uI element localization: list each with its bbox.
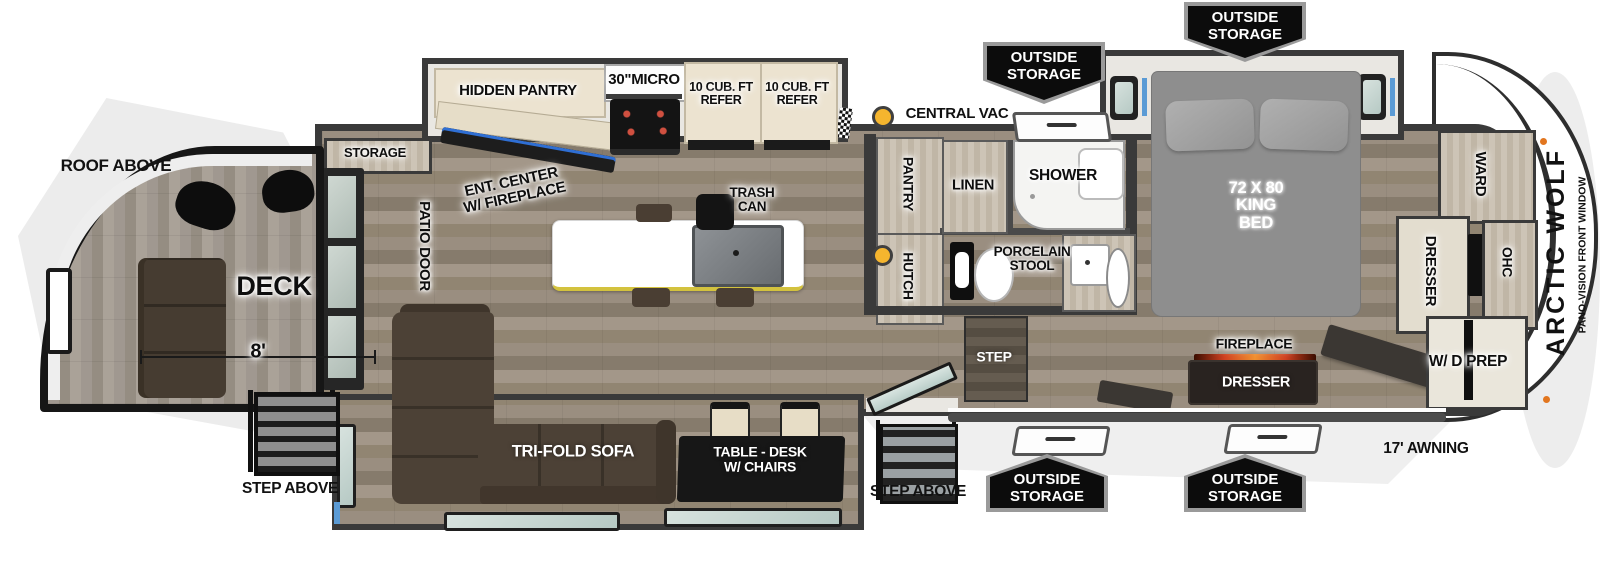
badge-text: OUTSIDE STORAGE: [1184, 9, 1306, 44]
sofa-slide-window-2: [664, 508, 842, 527]
baggage-door-bottom-1-handle: [1045, 437, 1076, 441]
trash-line2: CAN: [730, 200, 775, 214]
bed-pillow-left: [1165, 98, 1255, 151]
hutch-label: HUTCH: [901, 252, 916, 300]
island-stool-bottom-2: [716, 288, 754, 307]
pantry-label: PANTRY: [901, 157, 916, 211]
bedroom-dresser-label: DRESSER: [1222, 375, 1290, 390]
badge-line1: OUTSIDE: [983, 49, 1105, 66]
bed-line2: KING: [1229, 197, 1284, 214]
sofa-arm-end: [656, 420, 676, 504]
bed-line1: 72 X 80: [1229, 180, 1284, 197]
linen-label: LINEN: [952, 178, 994, 193]
sofa-label: TRI-FOLD SOFA: [512, 443, 635, 460]
shower-drain: [1030, 194, 1035, 199]
badge-line2: STORAGE: [1184, 26, 1306, 43]
baggage-door-top-handle: [1046, 123, 1077, 127]
fireplace-label: FIREPLACE: [1216, 337, 1293, 352]
central-vac-dot: [872, 106, 894, 128]
patio-door-label: PATIO DOOR: [416, 201, 432, 291]
badge-text: OUTSIDE STORAGE: [986, 471, 1108, 506]
bedroom-slide-window-right-pane: [1363, 80, 1381, 114]
refer1-line2: REFER: [689, 94, 753, 107]
baggage-door-top: [1012, 112, 1112, 142]
awning-bar: [948, 413, 1446, 422]
sofa-slide-window-1: [444, 512, 620, 531]
king-bed-label: 72 X 80 KING BED: [1229, 180, 1284, 232]
stove: [610, 99, 680, 155]
deck-label: DECK: [236, 272, 311, 300]
patio-door-pane-2: [328, 246, 356, 308]
storage-label: STORAGE: [344, 146, 406, 160]
kitchen-bath-wall: [864, 134, 876, 314]
vanity-faucet: [1085, 260, 1090, 265]
bedroom-slide-accent-right: [1390, 78, 1395, 116]
toilet-paper: [955, 252, 969, 288]
badge-line1: OUTSIDE: [1184, 9, 1306, 26]
badge-line2: STORAGE: [986, 488, 1108, 505]
roof-above-label: ROOF ABOVE: [61, 157, 172, 175]
deck-window: [46, 268, 72, 354]
table-desk-line1: TABLE - DESK: [713, 444, 806, 459]
refrigerator-1-base: [688, 140, 754, 150]
cap-marker-light-top: [1540, 138, 1547, 145]
microwave-label: 30"MICRO: [608, 72, 679, 88]
badge-line2: STORAGE: [1184, 488, 1306, 505]
badge-line1: OUTSIDE: [1184, 471, 1306, 488]
deck-stairs: [254, 392, 340, 476]
baggage-door-bottom-1: [1011, 426, 1110, 456]
sofa-back-cushion: [480, 486, 672, 504]
central-vac-label: CENTRAL VAC: [906, 106, 1009, 122]
deck-dim-tick-left: [140, 350, 142, 364]
outside-storage-badge-top-1: OUTSIDE STORAGE: [983, 42, 1105, 104]
table-desk-line2: W/ CHAIRS: [713, 459, 806, 474]
deck-sofa: [138, 258, 226, 398]
overhead-cabinet-label: OHC: [1500, 247, 1515, 277]
baggage-door-bottom-2-handle: [1257, 435, 1288, 439]
awning-rail-light: [948, 408, 1446, 412]
refer2-line2: REFER: [765, 94, 829, 107]
badge-text: OUTSIDE STORAGE: [983, 49, 1105, 84]
refrigerator-2-label: 10 CUB. FT REFER: [765, 81, 829, 107]
refrigerator-2-base: [764, 140, 830, 150]
deck-width-label: 8': [250, 342, 265, 363]
vanity-sink: [1070, 244, 1110, 286]
vanity-mirror: [1106, 248, 1130, 308]
wd-prep-label: W/ D PREP: [1429, 354, 1507, 370]
cap-marker-light-bottom: [1543, 396, 1550, 403]
bedroom-slide-window-left-pane: [1115, 82, 1133, 114]
bed-line3: BED: [1229, 215, 1284, 232]
front-dresser-label: DRESSER: [1422, 236, 1438, 306]
island-stool-top: [636, 204, 672, 222]
island-stool-bottom-1: [632, 288, 670, 307]
stool-line2: STOOL: [994, 259, 1071, 273]
interior-step-label: STEP: [976, 350, 1011, 365]
deck-dim-tick-right: [374, 350, 376, 364]
front-window-label: PANO-VISION FRONT WINDOW: [1577, 177, 1588, 334]
table-desk-label: TABLE - DESK W/ CHAIRS: [713, 444, 806, 473]
awning-label: 17' AWNING: [1383, 441, 1468, 457]
baggage-door-bottom-2: [1223, 424, 1322, 454]
trash-can: [696, 194, 734, 230]
wardrobe-label: WARD: [1472, 152, 1488, 197]
sofa-slide-accent: [334, 502, 340, 524]
island-sink: [692, 225, 784, 287]
shower-label: SHOWER: [1029, 168, 1097, 184]
sink-faucet: [733, 250, 739, 256]
porcelain-stool-label: PORCELAIN STOOL: [994, 245, 1071, 273]
entry-step-above-label: STEP ABOVE: [870, 484, 966, 500]
refrigerator-1-label: 10 CUB. FT REFER: [689, 81, 753, 107]
badge-text: OUTSIDE STORAGE: [1184, 471, 1306, 506]
badge-line1: OUTSIDE: [986, 471, 1108, 488]
patio-door-pane-1: [328, 176, 356, 238]
bedroom-slide-accent-left: [1142, 78, 1147, 116]
patio-door-pane-3: [328, 316, 356, 378]
trash-can-label: TRASH CAN: [730, 186, 775, 214]
brand-label: ARCTIC WOLF: [1543, 148, 1569, 356]
badge-line2: STORAGE: [983, 66, 1105, 83]
floorplan-canvas: ARCTIC WOLF PANO-VISION FRONT WINDOW HID…: [0, 0, 1600, 580]
central-vac-outlet-dot: [872, 245, 893, 266]
bed-pillow-right: [1259, 98, 1349, 151]
deck-stairs-rail-left: [248, 390, 253, 472]
deck-step-above-label: STEP ABOVE: [242, 481, 338, 497]
hidden-pantry-label: HIDDEN PANTRY: [459, 83, 577, 99]
